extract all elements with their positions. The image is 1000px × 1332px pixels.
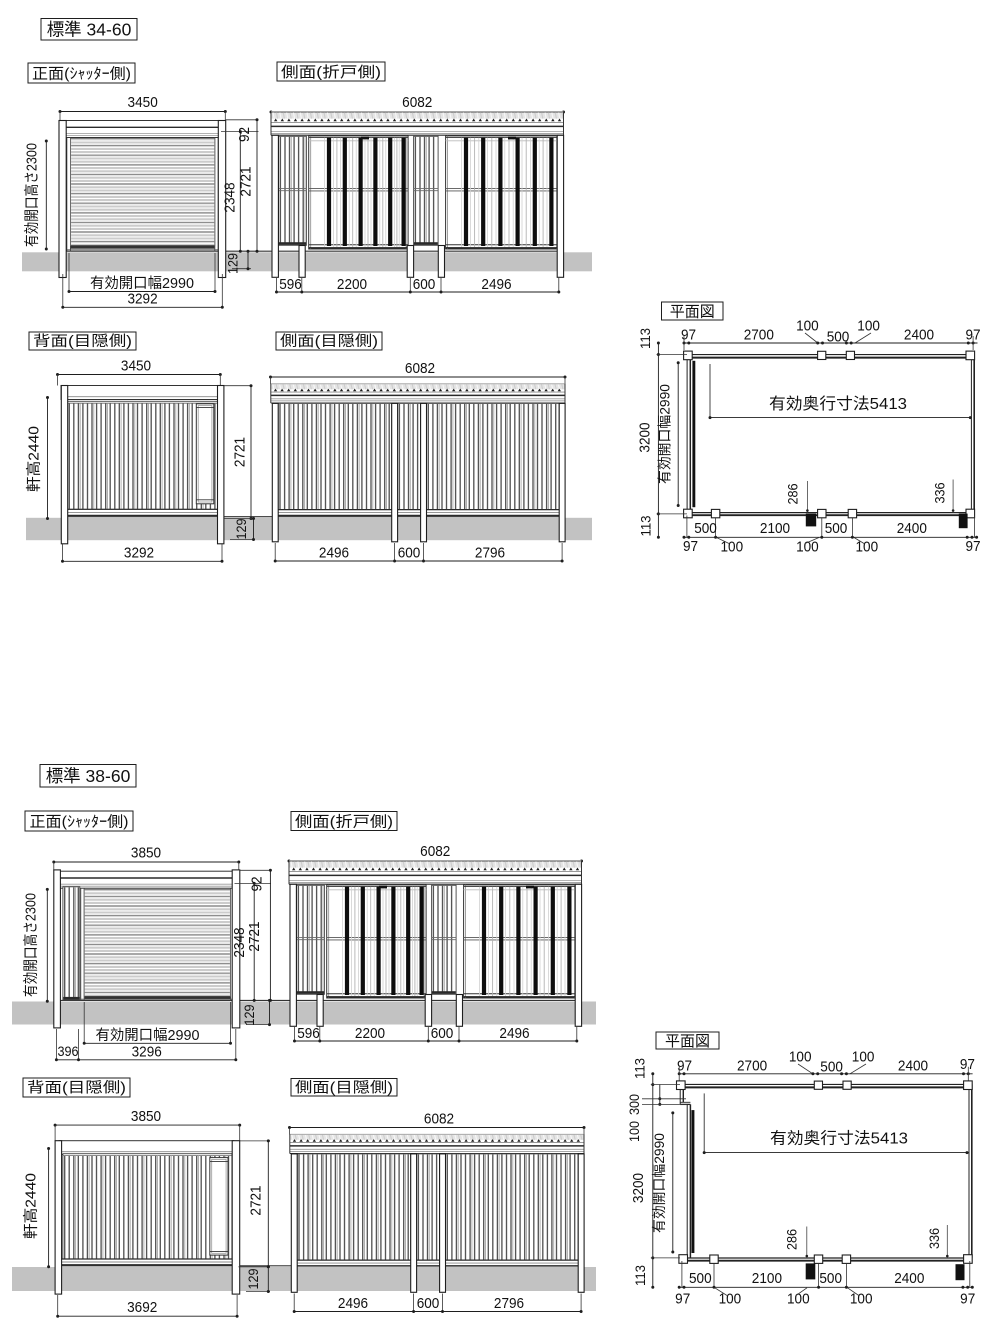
svg-text:2496: 2496 xyxy=(319,545,349,562)
svg-text:有効開口高さ2300: 有効開口高さ2300 xyxy=(24,143,41,247)
svg-text:129: 129 xyxy=(225,253,241,274)
svg-text:2721: 2721 xyxy=(232,437,249,467)
svg-text:500: 500 xyxy=(689,1270,712,1287)
svg-text:396: 396 xyxy=(57,1043,78,1059)
svg-text:6082: 6082 xyxy=(424,1111,454,1128)
svg-text:2100: 2100 xyxy=(752,1270,782,1287)
svg-text:3200: 3200 xyxy=(630,1173,647,1203)
svg-text:2400: 2400 xyxy=(894,1270,924,1287)
svg-text:3200: 3200 xyxy=(637,422,654,452)
svg-text:6082: 6082 xyxy=(402,94,432,111)
svg-text:2496: 2496 xyxy=(338,1295,368,1312)
svg-text:100: 100 xyxy=(850,1291,873,1308)
svg-text:2496: 2496 xyxy=(481,276,511,293)
svg-text:2348: 2348 xyxy=(222,182,239,212)
svg-text:500: 500 xyxy=(694,520,717,537)
svg-text:正面(ｼｬｯﾀｰ側): 正面(ｼｬｯﾀｰ側) xyxy=(32,65,131,82)
svg-text:113: 113 xyxy=(632,1265,648,1286)
svg-text:100: 100 xyxy=(789,1048,812,1065)
svg-text:3450: 3450 xyxy=(128,94,158,111)
svg-text:標準 38-60: 標準 38-60 xyxy=(46,766,131,786)
svg-text:有効開口幅2990: 有効開口幅2990 xyxy=(657,384,673,484)
svg-text:3850: 3850 xyxy=(131,845,161,862)
svg-text:113: 113 xyxy=(638,515,654,536)
svg-text:97: 97 xyxy=(675,1291,690,1308)
svg-text:113: 113 xyxy=(637,328,653,349)
svg-text:3292: 3292 xyxy=(127,291,157,308)
svg-text:596: 596 xyxy=(297,1025,320,1042)
svg-text:有効開口幅2990: 有効開口幅2990 xyxy=(651,1133,667,1233)
svg-text:300: 300 xyxy=(626,1094,642,1115)
svg-text:97: 97 xyxy=(681,327,696,344)
svg-text:有効奥行寸法5413: 有効奥行寸法5413 xyxy=(770,1129,908,1147)
svg-text:有効開口幅2990: 有効開口幅2990 xyxy=(90,275,194,292)
svg-text:3850: 3850 xyxy=(131,1108,161,1125)
svg-text:2200: 2200 xyxy=(355,1025,385,1042)
svg-text:平面図: 平面図 xyxy=(670,303,715,320)
svg-text:有効開口高さ2300: 有効開口高さ2300 xyxy=(23,893,40,997)
svg-text:286: 286 xyxy=(784,1229,800,1250)
svg-text:6082: 6082 xyxy=(420,843,450,860)
svg-text:正面(ｼｬｯﾀｰ側): 正面(ｼｬｯﾀｰ側) xyxy=(30,813,129,830)
svg-text:97: 97 xyxy=(960,1056,975,1073)
svg-text:500: 500 xyxy=(819,1270,842,1287)
svg-text:286: 286 xyxy=(785,483,801,504)
svg-text:側面(目隠側): 側面(目隠側) xyxy=(280,333,378,350)
svg-text:113: 113 xyxy=(632,1058,648,1079)
svg-text:97: 97 xyxy=(683,538,698,555)
svg-text:100: 100 xyxy=(857,318,880,335)
svg-text:2400: 2400 xyxy=(904,327,934,344)
svg-text:2796: 2796 xyxy=(494,1295,524,1312)
svg-text:2100: 2100 xyxy=(760,520,790,537)
svg-text:側面(目隠側): 側面(目隠側) xyxy=(295,1079,393,1096)
svg-text:596: 596 xyxy=(279,276,302,293)
svg-text:平面図: 平面図 xyxy=(665,1033,710,1050)
svg-text:500: 500 xyxy=(820,1058,843,1075)
svg-text:100: 100 xyxy=(856,539,879,556)
svg-text:600: 600 xyxy=(431,1025,454,1042)
svg-text:3292: 3292 xyxy=(124,545,154,562)
svg-text:2400: 2400 xyxy=(898,1058,928,1075)
svg-text:3692: 3692 xyxy=(127,1299,157,1316)
svg-text:100: 100 xyxy=(852,1048,875,1065)
svg-text:100: 100 xyxy=(796,539,819,556)
svg-text:有効奥行寸法5413: 有効奥行寸法5413 xyxy=(769,395,907,413)
svg-text:軒高2440: 軒高2440 xyxy=(26,426,43,492)
svg-text:97: 97 xyxy=(960,1291,975,1308)
svg-text:軒高2440: 軒高2440 xyxy=(23,1173,40,1239)
svg-text:336: 336 xyxy=(932,482,948,503)
svg-text:100: 100 xyxy=(787,1291,810,1308)
svg-text:有効開口幅2990: 有効開口幅2990 xyxy=(96,1027,200,1044)
svg-text:標準 34-60: 標準 34-60 xyxy=(47,20,132,40)
svg-text:2700: 2700 xyxy=(744,327,774,344)
svg-text:2721: 2721 xyxy=(246,921,263,951)
svg-text:3450: 3450 xyxy=(121,358,151,375)
svg-text:129: 129 xyxy=(245,1268,261,1289)
svg-text:97: 97 xyxy=(965,538,980,555)
svg-text:2796: 2796 xyxy=(475,545,505,562)
svg-text:6082: 6082 xyxy=(405,360,435,377)
svg-text:2700: 2700 xyxy=(737,1058,767,1075)
svg-text:336: 336 xyxy=(926,1228,942,1249)
svg-text:129: 129 xyxy=(241,1004,257,1025)
svg-text:2200: 2200 xyxy=(337,276,367,293)
svg-text:600: 600 xyxy=(413,276,436,293)
svg-text:100: 100 xyxy=(719,1291,742,1308)
svg-text:92: 92 xyxy=(236,127,253,142)
svg-text:600: 600 xyxy=(417,1295,440,1312)
svg-text:500: 500 xyxy=(825,520,848,537)
svg-text:100: 100 xyxy=(626,1121,642,1142)
svg-text:129: 129 xyxy=(233,518,249,539)
svg-text:側面(折戸側): 側面(折戸側) xyxy=(281,64,381,81)
svg-text:2496: 2496 xyxy=(499,1025,529,1042)
svg-text:背面(目隠側): 背面(目隠側) xyxy=(33,333,132,350)
svg-text:2721: 2721 xyxy=(248,1185,265,1215)
svg-text:100: 100 xyxy=(796,318,819,335)
svg-text:2721: 2721 xyxy=(238,166,255,196)
svg-text:92: 92 xyxy=(249,876,266,891)
svg-text:背面(目隠側): 背面(目隠側) xyxy=(27,1080,126,1097)
svg-text:2400: 2400 xyxy=(897,520,927,537)
svg-text:600: 600 xyxy=(398,545,421,562)
svg-text:3296: 3296 xyxy=(132,1043,162,1060)
svg-text:側面(折戸側): 側面(折戸側) xyxy=(295,813,393,830)
